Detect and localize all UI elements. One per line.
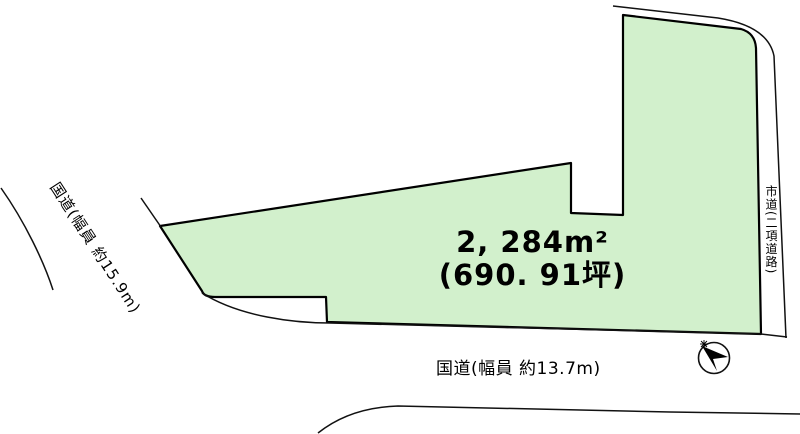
plot-area-tsubo: (690. 91坪) [425,259,640,292]
road-bottom-lower-edge [318,406,800,433]
north-compass-icon [699,340,730,374]
plot-area-m2: 2, 284m² [425,226,640,259]
land-plot-diagram: 2, 284m² (690. 91坪) 国道(幅員 約15.9m) 国道(幅員 … [0,0,800,434]
road-left-inner-edge [141,198,161,227]
diagram-canvas [0,0,800,434]
road-left-outer-edge [1,188,53,290]
road-right-label: 市道(二項道路) [763,185,780,274]
plot-area-label: 2, 284m² (690. 91坪) [425,226,640,292]
road-bottom-label: 国道(幅員 約13.7m) [436,354,601,379]
